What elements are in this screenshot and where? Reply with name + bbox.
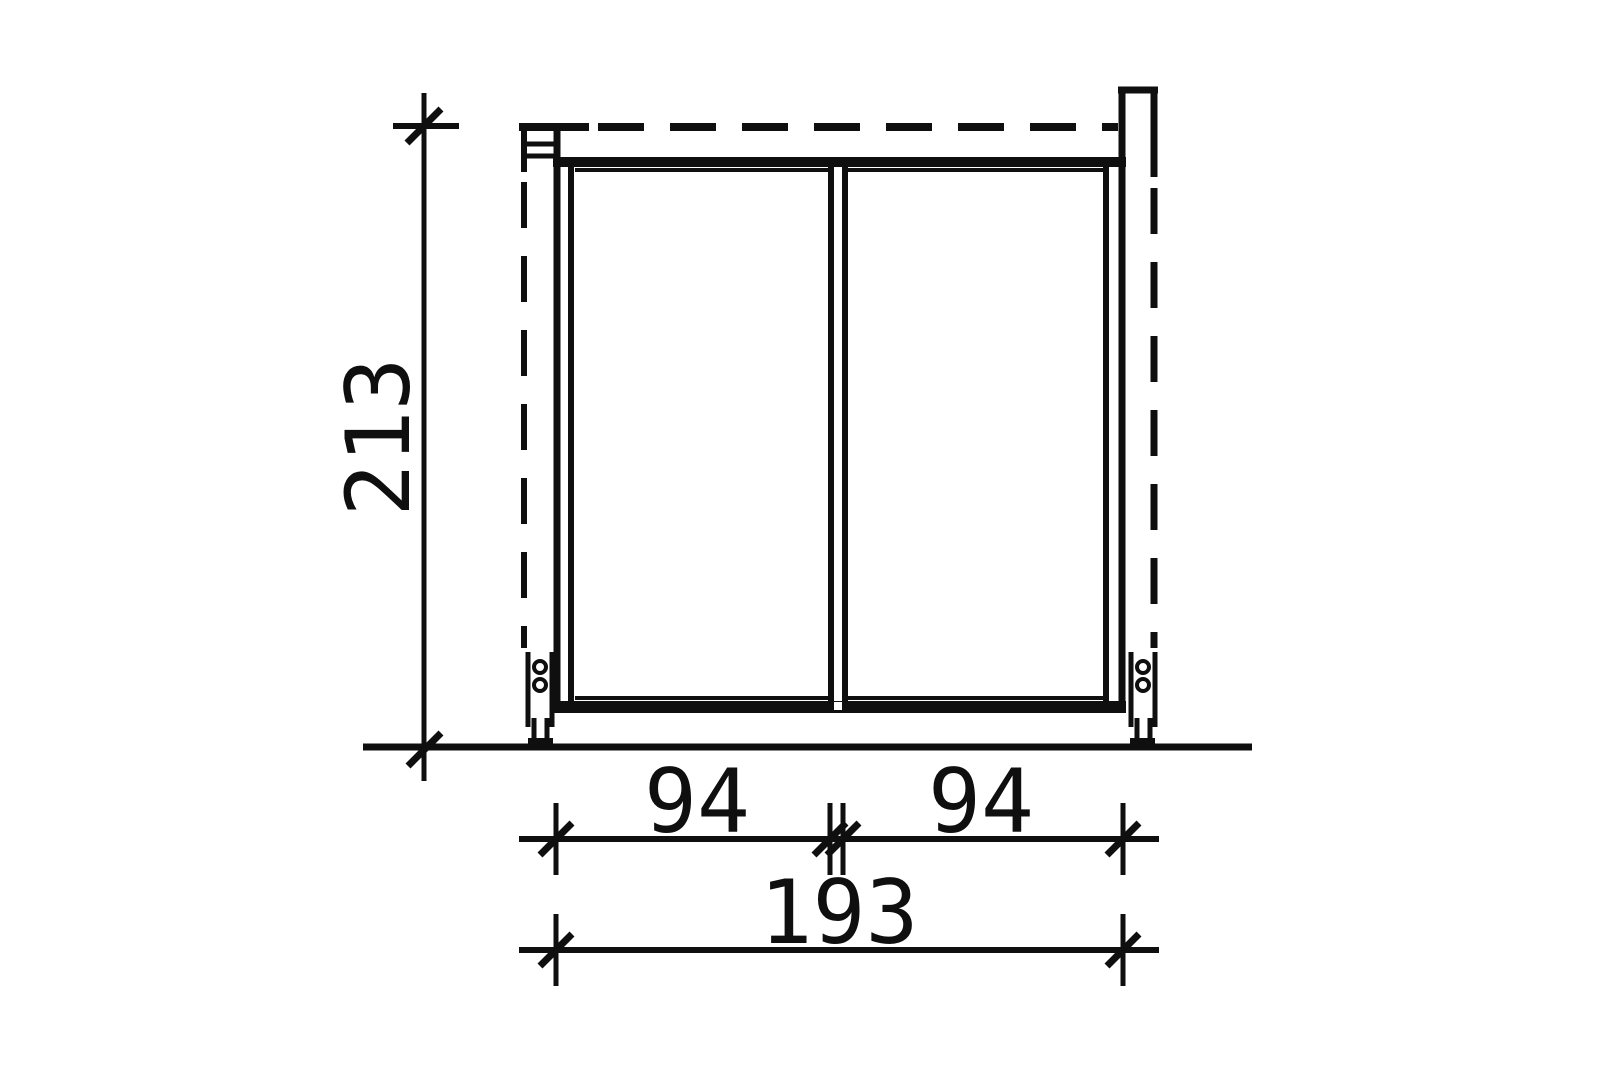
left-post-anchor xyxy=(528,652,553,743)
anchor-bolt-icon xyxy=(1137,661,1149,673)
mullion-bottom-notch xyxy=(834,702,842,710)
technical-drawing-page: 213 94 94 193 xyxy=(0,0,1600,1067)
anchor-bolt-icon xyxy=(534,661,546,673)
bay-width-dimension: 94 94 xyxy=(519,750,1159,875)
bay-right-width-label: 94 xyxy=(928,750,1034,853)
anchor-bolt-icon xyxy=(534,679,546,691)
overall-width-dimension: 193 xyxy=(519,861,1159,986)
anchor-bolt-icon xyxy=(1137,679,1149,691)
wall-frame xyxy=(553,123,1126,713)
right-post-anchor xyxy=(1130,652,1155,743)
side-wall-elevation-drawing: 213 94 94 193 xyxy=(0,0,1600,1067)
top-rail xyxy=(553,157,1126,167)
overall-width-label: 193 xyxy=(760,861,919,964)
right-post xyxy=(1118,87,1158,743)
height-dimension: 213 xyxy=(327,93,459,781)
bay-left-width-label: 94 xyxy=(644,750,750,853)
height-dimension-label: 213 xyxy=(327,358,430,517)
